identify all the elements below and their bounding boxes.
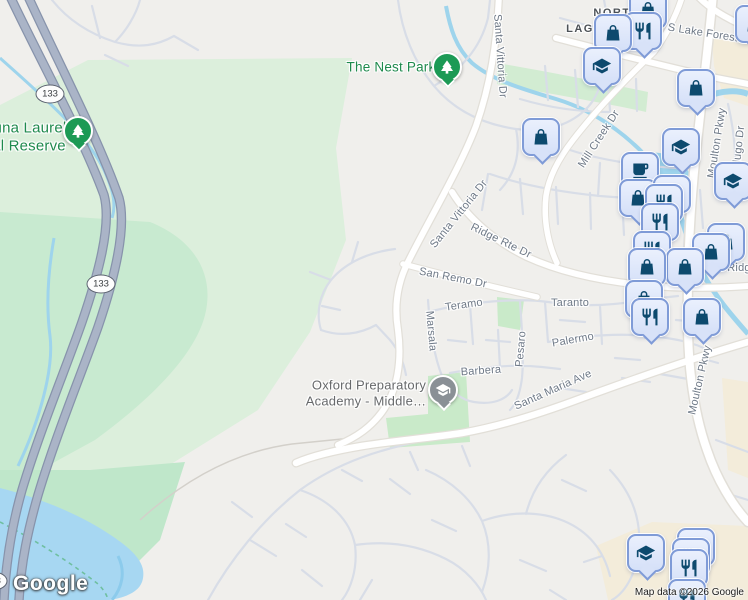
tree-icon — [439, 59, 455, 75]
coffee-icon — [630, 161, 650, 181]
google-logo[interactable]: Google — [13, 572, 88, 596]
poi-marker-graduation-cap[interactable] — [714, 162, 748, 200]
poi-marker-graduation-cap[interactable] — [583, 47, 621, 85]
restaurant-icon — [650, 212, 670, 232]
shopping-bag-icon — [692, 307, 712, 327]
route-shield-133: 133 — [36, 85, 65, 104]
area-label: LAG — [566, 23, 594, 35]
graduation-cap-icon — [636, 543, 656, 563]
poi-marker-restaurant[interactable] — [631, 298, 669, 336]
shopping-bag-icon — [686, 78, 706, 98]
park-label[interactable]: una Laurel — [0, 120, 66, 137]
shopping-bag-icon — [637, 257, 657, 277]
poi-marker-school[interactable] — [428, 375, 458, 405]
shopping-bag-icon — [675, 257, 695, 277]
poi-marker-shopping-bag[interactable] — [735, 5, 748, 43]
poi-label[interactable]: Oxford Preparatory — [312, 378, 426, 393]
poi-marker-shopping-bag[interactable] — [677, 69, 715, 107]
road-label: Taranto — [551, 297, 589, 309]
poi-label[interactable]: Academy - Middle… — [306, 394, 426, 409]
tree-icon — [70, 123, 86, 139]
poi-marker-shopping-bag[interactable] — [683, 298, 721, 336]
graduation-cap-icon — [592, 56, 612, 76]
poi-marker-tree[interactable] — [432, 52, 462, 82]
park-label[interactable]: The Nest Park — [347, 60, 436, 75]
poi-marker-shopping-bag[interactable] — [522, 118, 560, 156]
route-shield-133: 133 — [87, 275, 116, 294]
shopping-bag-icon — [603, 23, 623, 43]
restaurant-icon — [679, 558, 699, 578]
map[interactable]: S Lake ForestSanta Vittoria DrMill Creek… — [0, 0, 748, 600]
graduation-cap-icon — [671, 137, 691, 157]
park-label[interactable]: al Reserve — [0, 138, 66, 155]
shopping-bag-icon — [744, 14, 748, 34]
poi-marker-tree[interactable] — [63, 116, 93, 146]
shopping-bag-icon — [531, 127, 551, 147]
poi-marker-shopping-bag[interactable] — [666, 248, 704, 286]
poi-marker-graduation-cap[interactable] — [627, 534, 665, 572]
poi-marker-graduation-cap[interactable] — [662, 128, 700, 166]
graduation-cap-icon — [723, 171, 743, 191]
restaurant-icon — [640, 307, 660, 327]
shopping-bag-icon — [701, 242, 721, 262]
map-attribution: Map data ©2026 Google — [635, 587, 744, 598]
school-icon — [435, 382, 451, 398]
restaurant-icon — [633, 21, 653, 41]
